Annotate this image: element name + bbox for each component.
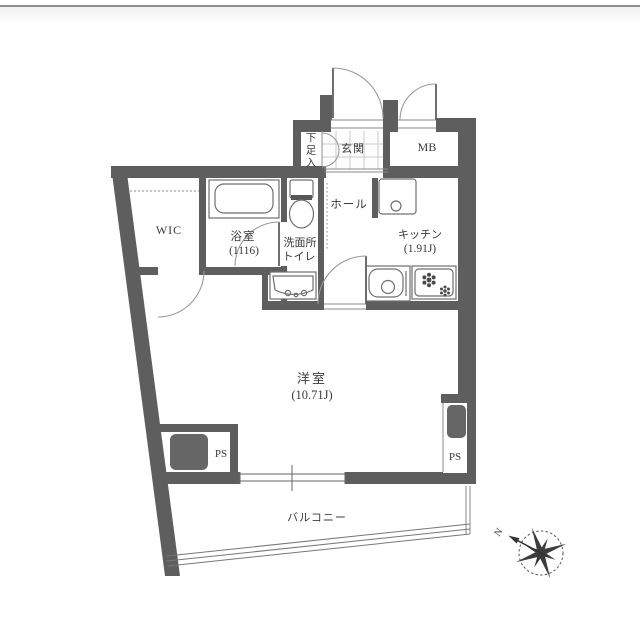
floorplan-image: N WIC 浴室 (1116) 洗面所 トイレ 下足入 玄関 MB ホール キッ… xyxy=(0,0,640,630)
washer-space-icon xyxy=(379,179,416,214)
entry-door xyxy=(333,68,383,118)
pipe-shaft-right xyxy=(447,405,466,438)
room-label-balcony: バルコニー xyxy=(287,511,347,524)
compass-north-label: N xyxy=(492,526,505,538)
balcony-rail xyxy=(167,486,470,566)
room-label-entrance: 玄関 xyxy=(341,141,365,155)
compass-rose-icon: N xyxy=(492,518,575,587)
stove-icon xyxy=(412,266,456,299)
window xyxy=(240,465,345,491)
walls xyxy=(111,95,476,576)
floorplan-svg: N WIC 浴室 (1116) 洗面所 トイレ 下足入 玄関 MB ホール キッ… xyxy=(0,0,640,630)
room-label-toilet: トイレ xyxy=(283,251,316,263)
kitchen-sink-icon xyxy=(366,266,410,301)
washbasin-icon xyxy=(270,272,316,299)
top-border xyxy=(0,5,640,24)
room-label-bath: 浴室 xyxy=(231,229,256,243)
room-label-ps-right: PS xyxy=(449,451,461,463)
bathtub-icon xyxy=(209,180,279,218)
room-label-hall: ホール xyxy=(330,198,368,211)
toilet-icon xyxy=(290,180,314,228)
room-size-kitchen: (1.91J) xyxy=(404,243,436,255)
room-label-kitchen: キッチン xyxy=(398,228,442,241)
room-label-wic: WIC xyxy=(156,223,182,237)
room-size-western-room: (10.71J) xyxy=(291,388,332,402)
room-label-ps-left: PS xyxy=(215,448,227,460)
hall-door xyxy=(318,256,366,304)
bath-door xyxy=(235,222,279,266)
room-label-shoe-box: 下足入 xyxy=(306,133,317,169)
meter-box-door xyxy=(400,84,436,120)
room-label-western-room: 洋室 xyxy=(297,371,327,386)
room-label-meter-box: MB xyxy=(418,140,437,154)
room-label-washroom: 洗面所 xyxy=(284,236,317,249)
room-size-bath: (1116) xyxy=(229,245,259,257)
pipe-shaft-left xyxy=(170,434,208,470)
wic-door xyxy=(158,271,204,317)
